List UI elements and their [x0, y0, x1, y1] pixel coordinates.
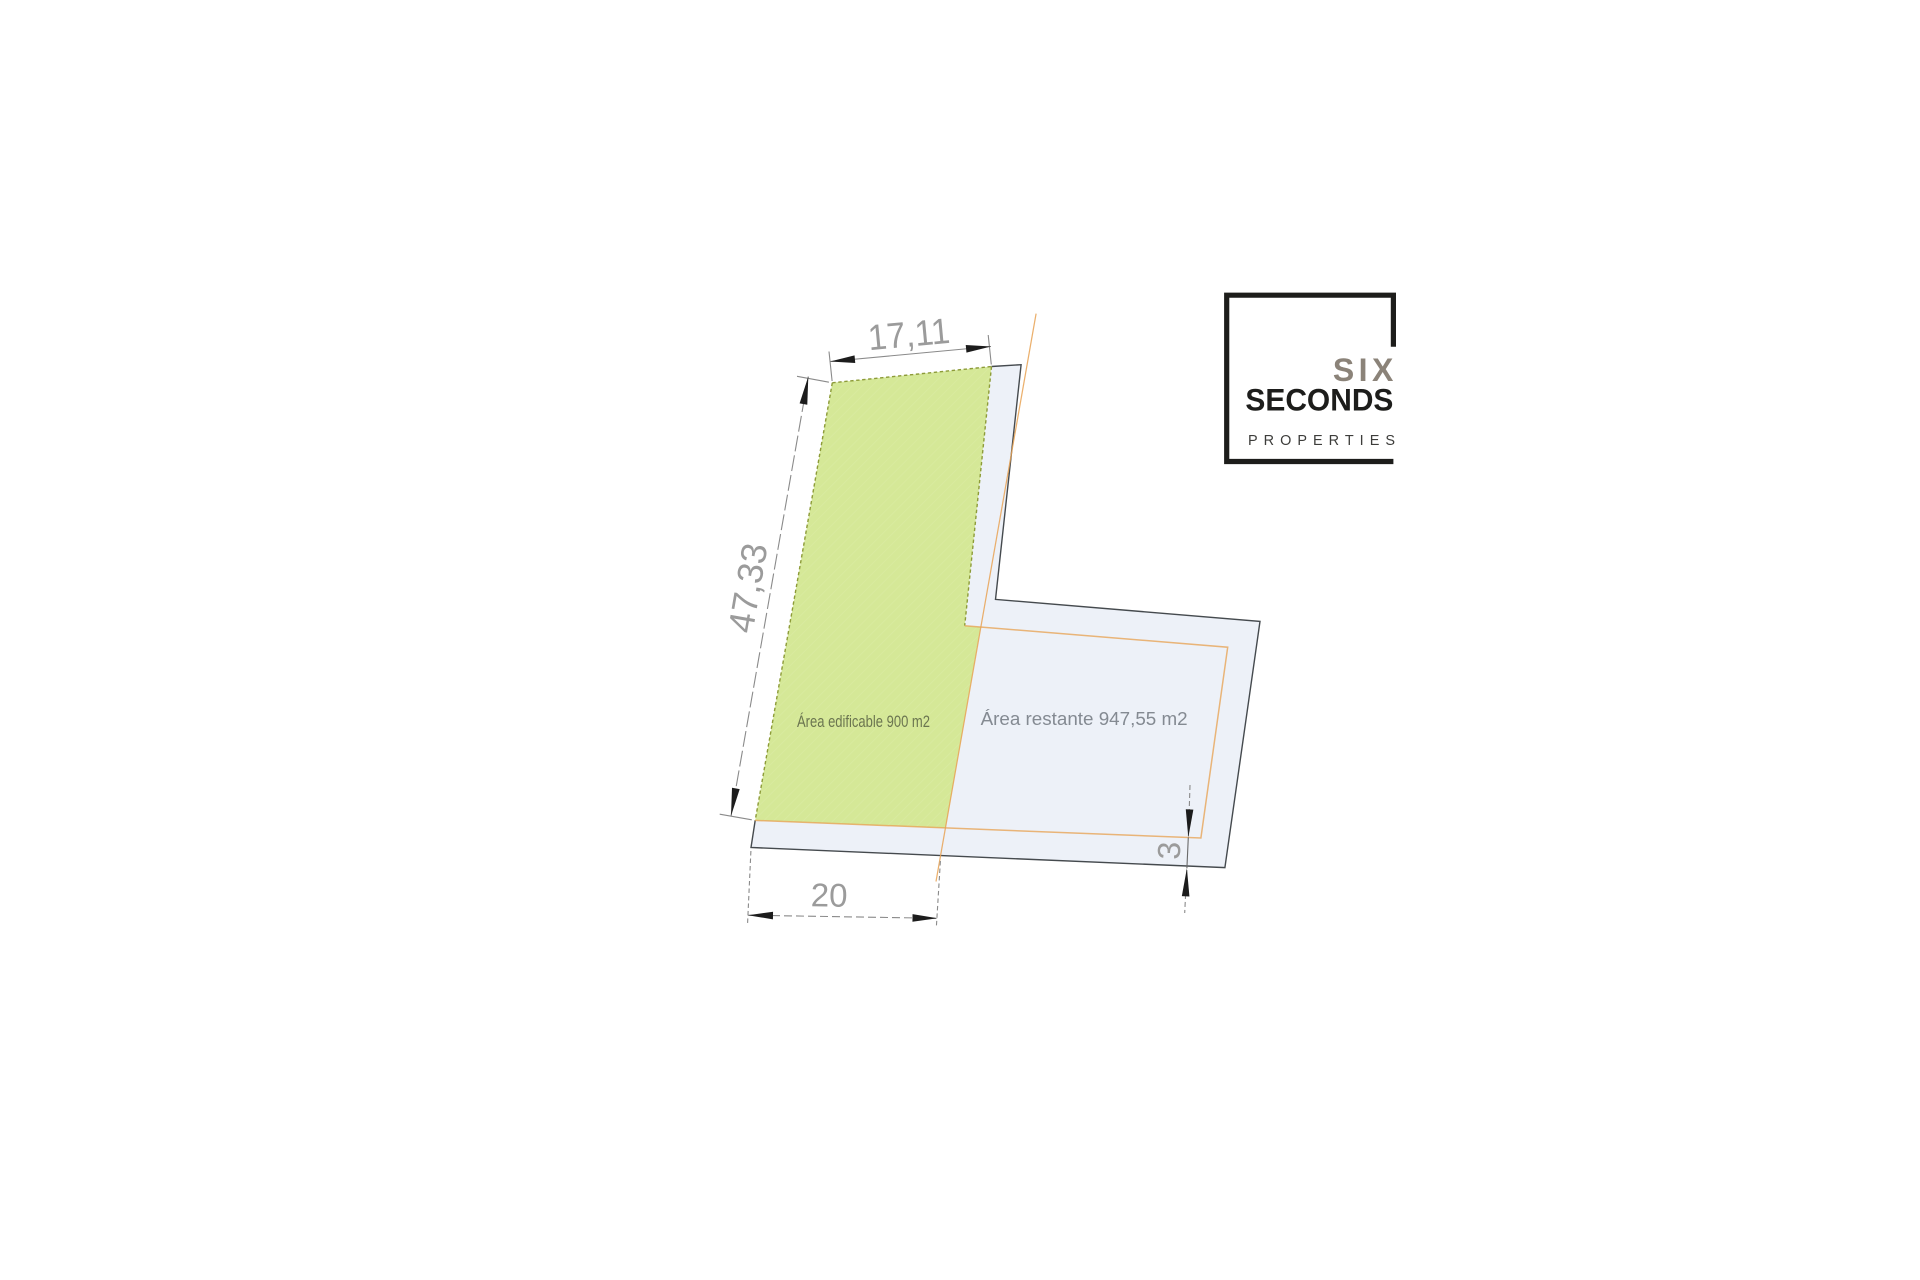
- svg-text:Área restante 947,55 m2: Área restante 947,55 m2: [981, 709, 1188, 729]
- svg-text:Área edificable 900 m2: Área edificable 900 m2: [797, 712, 930, 731]
- svg-text:17,11: 17,11: [866, 310, 951, 358]
- svg-text:PROPERTIES: PROPERTIES: [1248, 433, 1401, 449]
- svg-text:47,33: 47,33: [720, 540, 776, 636]
- svg-text:3: 3: [1151, 841, 1188, 860]
- svg-text:20: 20: [811, 876, 848, 914]
- svg-text:SECONDS: SECONDS: [1245, 381, 1393, 417]
